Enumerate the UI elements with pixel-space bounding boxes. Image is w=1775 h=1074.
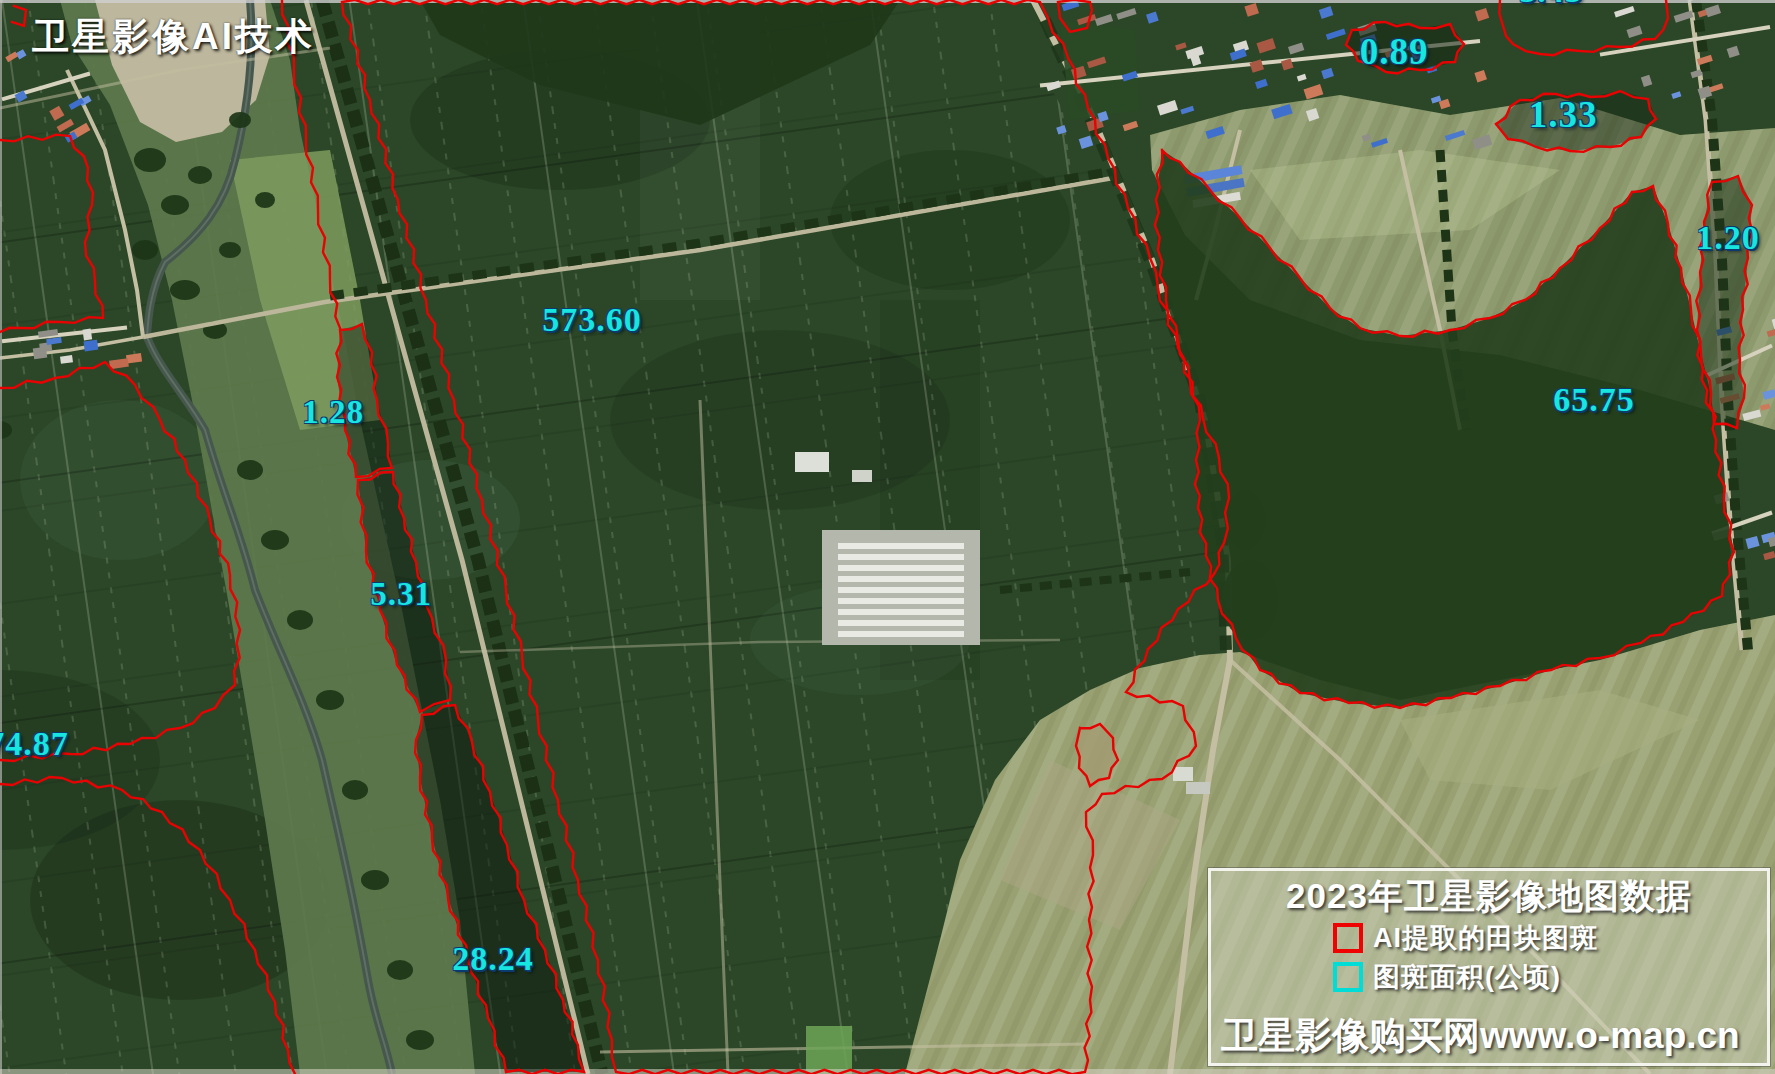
watermark: 卫星影像AI技术 [32,12,315,62]
legend-item-label: 图斑面积(公顷) [1373,959,1561,995]
legend-title: 2023年卫星影像地图数据 [1221,875,1757,917]
legend-panel: 2023年卫星影像地图数据 AI提取的田块图斑 图斑面积(公顷) 卫星影像购买网… [1208,868,1770,1066]
bright-field-patch [806,1026,852,1074]
parcel-outline-swatch [1333,923,1363,953]
legend-item-parcel: AI提取的田块图斑 [1333,920,1757,956]
legend-footer: 卫星影像购买网www.o-map.cn [1221,1015,1757,1057]
legend-item-label: AI提取的田块图斑 [1373,920,1598,956]
legend-item-area: 图斑面积(公顷) [1333,959,1757,995]
white-building [795,452,829,472]
satellite-map: 3.430.891.331.2065.75573.601.285.3128.24… [0,0,1775,1074]
farm-building [1173,767,1193,781]
area-value-swatch [1333,962,1363,992]
left-edge-line [0,0,2,1074]
